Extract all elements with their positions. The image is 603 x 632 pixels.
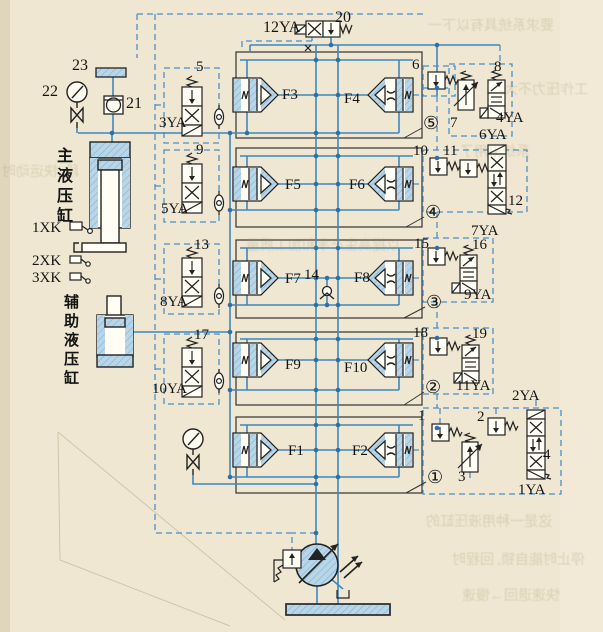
label-9ya: 9YA [464,288,492,303]
label-7: 7 [450,116,458,131]
label-8: 8 [494,60,502,75]
main-tank [286,604,390,615]
oil-tank-23 [96,68,126,77]
label-f7: F7 [285,272,301,287]
label-f1: F1 [288,444,304,459]
label-3: 3 [458,470,466,485]
label-1: 1 [418,409,426,424]
scanned-hydraulic-circuit-figure: 12YA 20 23 22 21 5 3YA 9 5YA 13 8YA 17 1… [0,0,603,632]
label-1ya: 1YA [518,483,546,498]
label-f9: F9 [285,358,301,373]
circle-number-3: ③ [426,294,442,312]
circle-number-4: ④ [425,204,441,222]
label-12ya: 12YA [263,20,300,36]
circle-number-2: ② [425,379,441,397]
label-f10: F10 [344,361,367,376]
label-f6: F6 [349,178,365,193]
circle-number-1: ① [427,469,443,487]
label-13: 13 [194,238,209,253]
bleed-text: 工作压力不大。 [490,84,588,98]
label-5: 5 [196,60,204,75]
label-23: 23 [72,58,88,74]
label-f5: F5 [285,178,301,193]
label-15: 15 [414,237,429,252]
bleed-text: 要求系统具有以下一 [428,20,554,34]
label-19: 19 [472,327,487,342]
label-2ya: 2YA [512,389,540,404]
label-2: 2 [477,410,485,425]
label-11ya: 11YA [456,379,490,394]
label-14: 14 [304,268,319,283]
label-f4: F4 [344,92,360,107]
label-18: 18 [413,326,428,341]
label-10: 10 [413,144,428,159]
label-4: 4 [543,448,551,463]
label-8ya: 8YA [160,295,188,310]
bleed-text: 系统采用了 [460,146,530,160]
label-aux-cylinder: 辅助液压缸 [62,294,77,414]
label-12: 12 [508,194,523,209]
label-f2: F2 [352,444,368,459]
bleed-text: 这是一种用液压缸的 [426,516,552,530]
label-3ya: 3YA [159,116,187,131]
label-10ya: 10YA [152,382,187,397]
label-21: 21 [126,96,142,112]
label-6: 6 [412,58,420,73]
label-22: 22 [42,84,58,100]
bleed-text: 段, 快运动时 [2,166,79,180]
label-4ya: 4YA [496,111,524,126]
label-6ya: 6YA [479,128,507,143]
label-f3: F3 [282,88,298,103]
bleed-text: 快速退回→慢速 [462,590,560,604]
label-20: 20 [335,10,351,26]
bleed-text: 以提高生产率和加工质量 [246,240,400,254]
label-5ya: 5YA [161,202,189,217]
label-3xk: 3XK [32,271,61,286]
label-9: 9 [196,143,204,158]
label-17: 17 [194,328,209,343]
circle-number-5: ⑤ [423,115,439,133]
check-filter-21 [104,96,123,114]
bleed-text: 停止时能自锁, 回程时 [452,554,585,568]
label-f8: F8 [354,271,370,286]
label-16: 16 [472,238,487,253]
label-11: 11 [443,144,457,159]
label-main-cylinder: 主液压缸 [54,147,70,259]
